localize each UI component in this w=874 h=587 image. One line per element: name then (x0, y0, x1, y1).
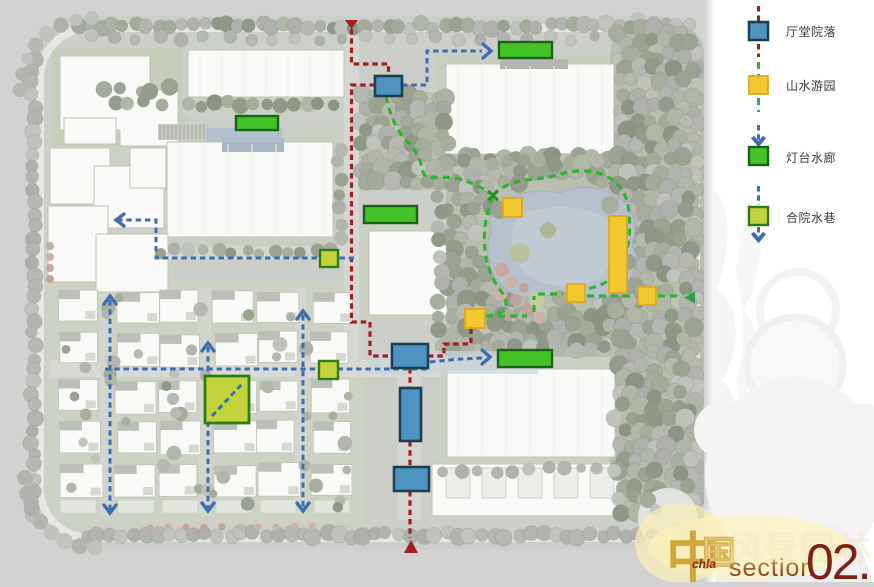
svg-text:02.: 02. (806, 534, 870, 582)
svg-text:section: section (729, 554, 815, 582)
svg-text:chla: chla (692, 557, 716, 571)
svg-text:合院水巷: 合院水巷 (786, 210, 836, 225)
svg-text:厅堂院落: 厅堂院落 (786, 25, 836, 39)
svg-text:灯台水廊: 灯台水廊 (786, 150, 836, 165)
svg-text:山水游园: 山水游园 (786, 79, 836, 93)
